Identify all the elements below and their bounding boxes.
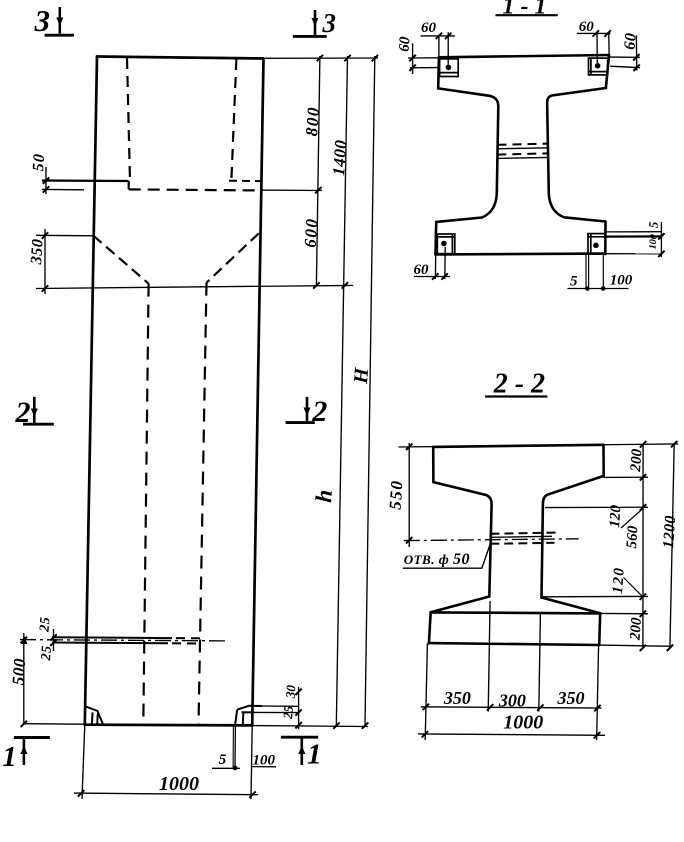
svg-text:60: 60 (421, 20, 437, 36)
svg-text:560: 560 (624, 525, 642, 549)
svg-text:50: 50 (30, 153, 48, 172)
svg-text:30: 30 (282, 684, 298, 700)
svg-text:100: 100 (610, 273, 633, 289)
svg-text:5: 5 (219, 752, 227, 768)
svg-text:60: 60 (622, 32, 640, 50)
svg-text:1: 1 (307, 739, 322, 771)
svg-text:600: 600 (301, 217, 322, 248)
svg-text:ОТВ. ф 50: ОТВ. ф 50 (404, 551, 470, 568)
svg-text:2 - 2: 2 - 2 (493, 369, 545, 400)
svg-text:200: 200 (628, 448, 646, 473)
svg-text:300: 300 (498, 691, 526, 711)
svg-text:120: 120 (607, 504, 625, 528)
svg-text:1: 1 (2, 741, 17, 773)
svg-text:200: 200 (627, 617, 645, 642)
svg-text:3: 3 (34, 3, 51, 38)
svg-text:1 - 1: 1 - 1 (503, 0, 547, 20)
svg-text:25: 25 (39, 645, 55, 662)
svg-text:5: 5 (570, 274, 578, 290)
svg-text:60: 60 (397, 36, 414, 53)
svg-text:120: 120 (610, 566, 628, 594)
svg-text:h: h (311, 489, 337, 504)
svg-text:25: 25 (280, 705, 296, 721)
svg-text:3: 3 (322, 8, 337, 38)
svg-text:800: 800 (302, 106, 323, 137)
svg-text:1000: 1000 (159, 773, 199, 795)
svg-text:25: 25 (37, 616, 53, 633)
svg-text:500: 500 (9, 658, 30, 686)
svg-text:1200: 1200 (660, 515, 679, 549)
svg-text:1400: 1400 (329, 139, 350, 176)
svg-text:350: 350 (443, 688, 471, 708)
svg-text:100: 100 (252, 753, 275, 769)
svg-text:60: 60 (579, 19, 595, 35)
svg-text:100: 100 (648, 234, 660, 250)
svg-text:550: 550 (386, 479, 407, 510)
svg-text:1000: 1000 (503, 712, 543, 734)
svg-text:350: 350 (557, 688, 585, 708)
svg-text:350: 350 (28, 238, 47, 266)
svg-text:60: 60 (414, 262, 430, 278)
svg-text:H: H (350, 366, 373, 385)
